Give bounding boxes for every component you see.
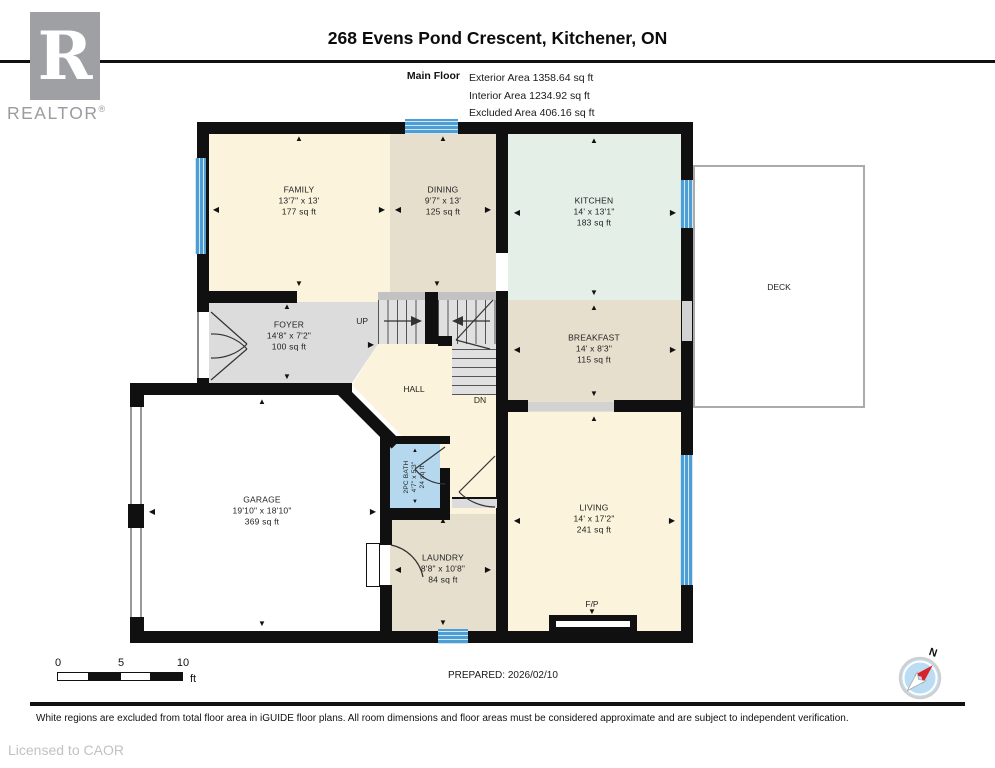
room-label-hall: HALL bbox=[403, 384, 424, 394]
dim-arrow-down: ▼ bbox=[258, 620, 266, 628]
dim-arrow-up: ▲ bbox=[590, 415, 598, 423]
dim-arrow-down: ▼ bbox=[412, 499, 418, 505]
exterior-area: Exterior Area 1358.64 sq ft bbox=[469, 70, 595, 88]
garage-wall-post-bottom bbox=[130, 617, 144, 643]
dim-arrow-down: ▼ bbox=[588, 608, 596, 616]
fireplace-inner bbox=[556, 621, 630, 627]
window-dining-top bbox=[405, 119, 458, 134]
wall-garage-laundry-a bbox=[380, 520, 392, 545]
dim-arrow-right: ▶ bbox=[370, 508, 376, 516]
stair-landing-edge bbox=[378, 292, 498, 300]
opening-breakfast-living bbox=[528, 402, 614, 411]
wall-living-left bbox=[496, 412, 508, 631]
realtor-logo-text: REALTOR® bbox=[7, 103, 107, 124]
dim-arrow-down: ▼ bbox=[433, 280, 441, 288]
label-dn: DN bbox=[474, 395, 486, 405]
scale-segment bbox=[89, 672, 120, 681]
wall-garage-top bbox=[130, 383, 352, 395]
window-living bbox=[680, 455, 693, 585]
dim-arrow-left: ◀ bbox=[149, 508, 155, 516]
dim-arrow-left: ◀ bbox=[395, 566, 401, 574]
room-label-kitchen: KITCHEN14' x 13'1"183 sq ft bbox=[573, 196, 614, 229]
dim-arrow-right: ▶ bbox=[670, 346, 676, 354]
page-title: 268 Evens Pond Crescent, Kitchener, ON bbox=[0, 28, 995, 49]
room-label-family: FAMILY13'7" x 13'177 sq ft bbox=[278, 185, 319, 218]
dim-arrow-up: ▲ bbox=[258, 398, 266, 406]
stairs-up bbox=[378, 300, 425, 344]
compass-icon bbox=[897, 652, 947, 702]
license-text: Licensed to CAOR bbox=[8, 742, 124, 758]
wall-breakfast-living-b bbox=[614, 400, 693, 412]
room-label-laundry: LAUNDRY8'8" x 10'8"84 sq ft bbox=[421, 553, 465, 586]
wall-dining-kitchen bbox=[496, 122, 508, 253]
room-label-living: LIVING14' x 17'2"241 sq ft bbox=[573, 503, 614, 536]
wall-breakfast-living-a bbox=[498, 400, 528, 412]
area-summary: Exterior Area 1358.64 sq ft Interior Are… bbox=[469, 70, 595, 123]
room-label-garage: GARAGE19'10" x 18'10"369 sq ft bbox=[232, 495, 291, 528]
interior-area: Interior Area 1234.92 sq ft bbox=[469, 88, 595, 106]
dim-arrow-up: ▲ bbox=[590, 137, 598, 145]
room-label-foyer: FOYER14'8" x 7'2"100 sq ft bbox=[267, 320, 311, 353]
wall-foyer-top bbox=[197, 291, 297, 303]
dim-arrow-left: ◀ bbox=[514, 346, 520, 354]
dim-arrow-right: ▶ bbox=[670, 209, 676, 217]
room-family bbox=[209, 134, 390, 302]
dim-arrow-down: ▼ bbox=[439, 619, 447, 627]
wall-garage-laundry-b bbox=[380, 585, 392, 631]
stair-divider-wall bbox=[425, 292, 438, 344]
scale-segment bbox=[151, 672, 183, 681]
window-kitchen bbox=[680, 180, 693, 228]
dim-arrow-left: ◀ bbox=[514, 209, 520, 217]
dim-arrow-left: ◀ bbox=[514, 517, 520, 525]
window-family bbox=[195, 158, 206, 254]
opening-breakfast-deck bbox=[682, 301, 692, 341]
scale-unit: ft bbox=[190, 673, 196, 685]
floorplan-page: R REALTOR® 268 Evens Pond Crescent, Kitc… bbox=[0, 0, 995, 768]
dim-arrow-left: ◀ bbox=[395, 206, 401, 214]
dim-arrow-right: ▶ bbox=[669, 517, 675, 525]
room-label-bath: 2PC BATH4'7" x 5'3"24 sq ft bbox=[403, 461, 427, 494]
wall-hall-breakfast bbox=[496, 291, 508, 412]
floor-label: Main Floor bbox=[350, 70, 460, 82]
stairs-down bbox=[452, 344, 498, 395]
dim-arrow-up: ▲ bbox=[439, 135, 447, 143]
dim-arrow-down: ▼ bbox=[295, 280, 303, 288]
room-label-deck: DECK bbox=[767, 282, 791, 292]
footer-disclaimer: White regions are excluded from total fl… bbox=[36, 713, 966, 724]
dim-arrow-up: ▲ bbox=[283, 303, 291, 311]
dim-arrow-right: ▶ bbox=[485, 566, 491, 574]
scale-segment bbox=[120, 672, 151, 681]
garage-door-leaf bbox=[366, 543, 380, 587]
excluded-area: Excluded Area 406.16 sq ft bbox=[469, 105, 595, 123]
stair-wall-stub bbox=[438, 336, 452, 346]
footer-rule bbox=[30, 702, 965, 706]
room-dining bbox=[390, 134, 496, 302]
dim-arrow-down: ▼ bbox=[283, 373, 291, 381]
dim-arrow-up: ▲ bbox=[295, 135, 303, 143]
garage-wall-post-mid bbox=[128, 504, 144, 528]
room-label-breakfast: BREAKFAST14' x 8'3"115 sq ft bbox=[568, 333, 620, 366]
dim-arrow-right: ▶ bbox=[379, 206, 385, 214]
garage-wall-post-top bbox=[130, 383, 144, 407]
front-door-opening bbox=[197, 312, 209, 378]
dim-arrow-down: ▼ bbox=[590, 390, 598, 398]
window-laundry bbox=[438, 629, 468, 644]
scale-segment bbox=[57, 672, 89, 681]
dim-arrow-down: ▼ bbox=[590, 289, 598, 297]
bath-door-gap bbox=[440, 444, 450, 468]
prepared-date: PREPARED: 2026/02/10 bbox=[448, 670, 558, 681]
scale-tick-0: 0 bbox=[55, 657, 61, 669]
dim-arrow-right: ▶ bbox=[485, 206, 491, 214]
room-label-dining: DINING9'7" x 13'125 sq ft bbox=[425, 185, 461, 218]
realtor-logo: R bbox=[30, 12, 100, 100]
hall-step bbox=[452, 497, 497, 508]
dim-arrow-up: ▲ bbox=[439, 517, 447, 525]
scale-tick-10: 10 bbox=[177, 657, 189, 669]
header-rule bbox=[0, 60, 995, 63]
label-up: UP bbox=[356, 316, 368, 326]
dim-arrow-up: ▲ bbox=[590, 304, 598, 312]
dim-arrow-right: ▶ bbox=[368, 341, 374, 349]
dim-arrow-up: ▲ bbox=[412, 448, 418, 454]
dim-arrow-left: ◀ bbox=[213, 206, 219, 214]
scale-tick-5: 5 bbox=[118, 657, 124, 669]
